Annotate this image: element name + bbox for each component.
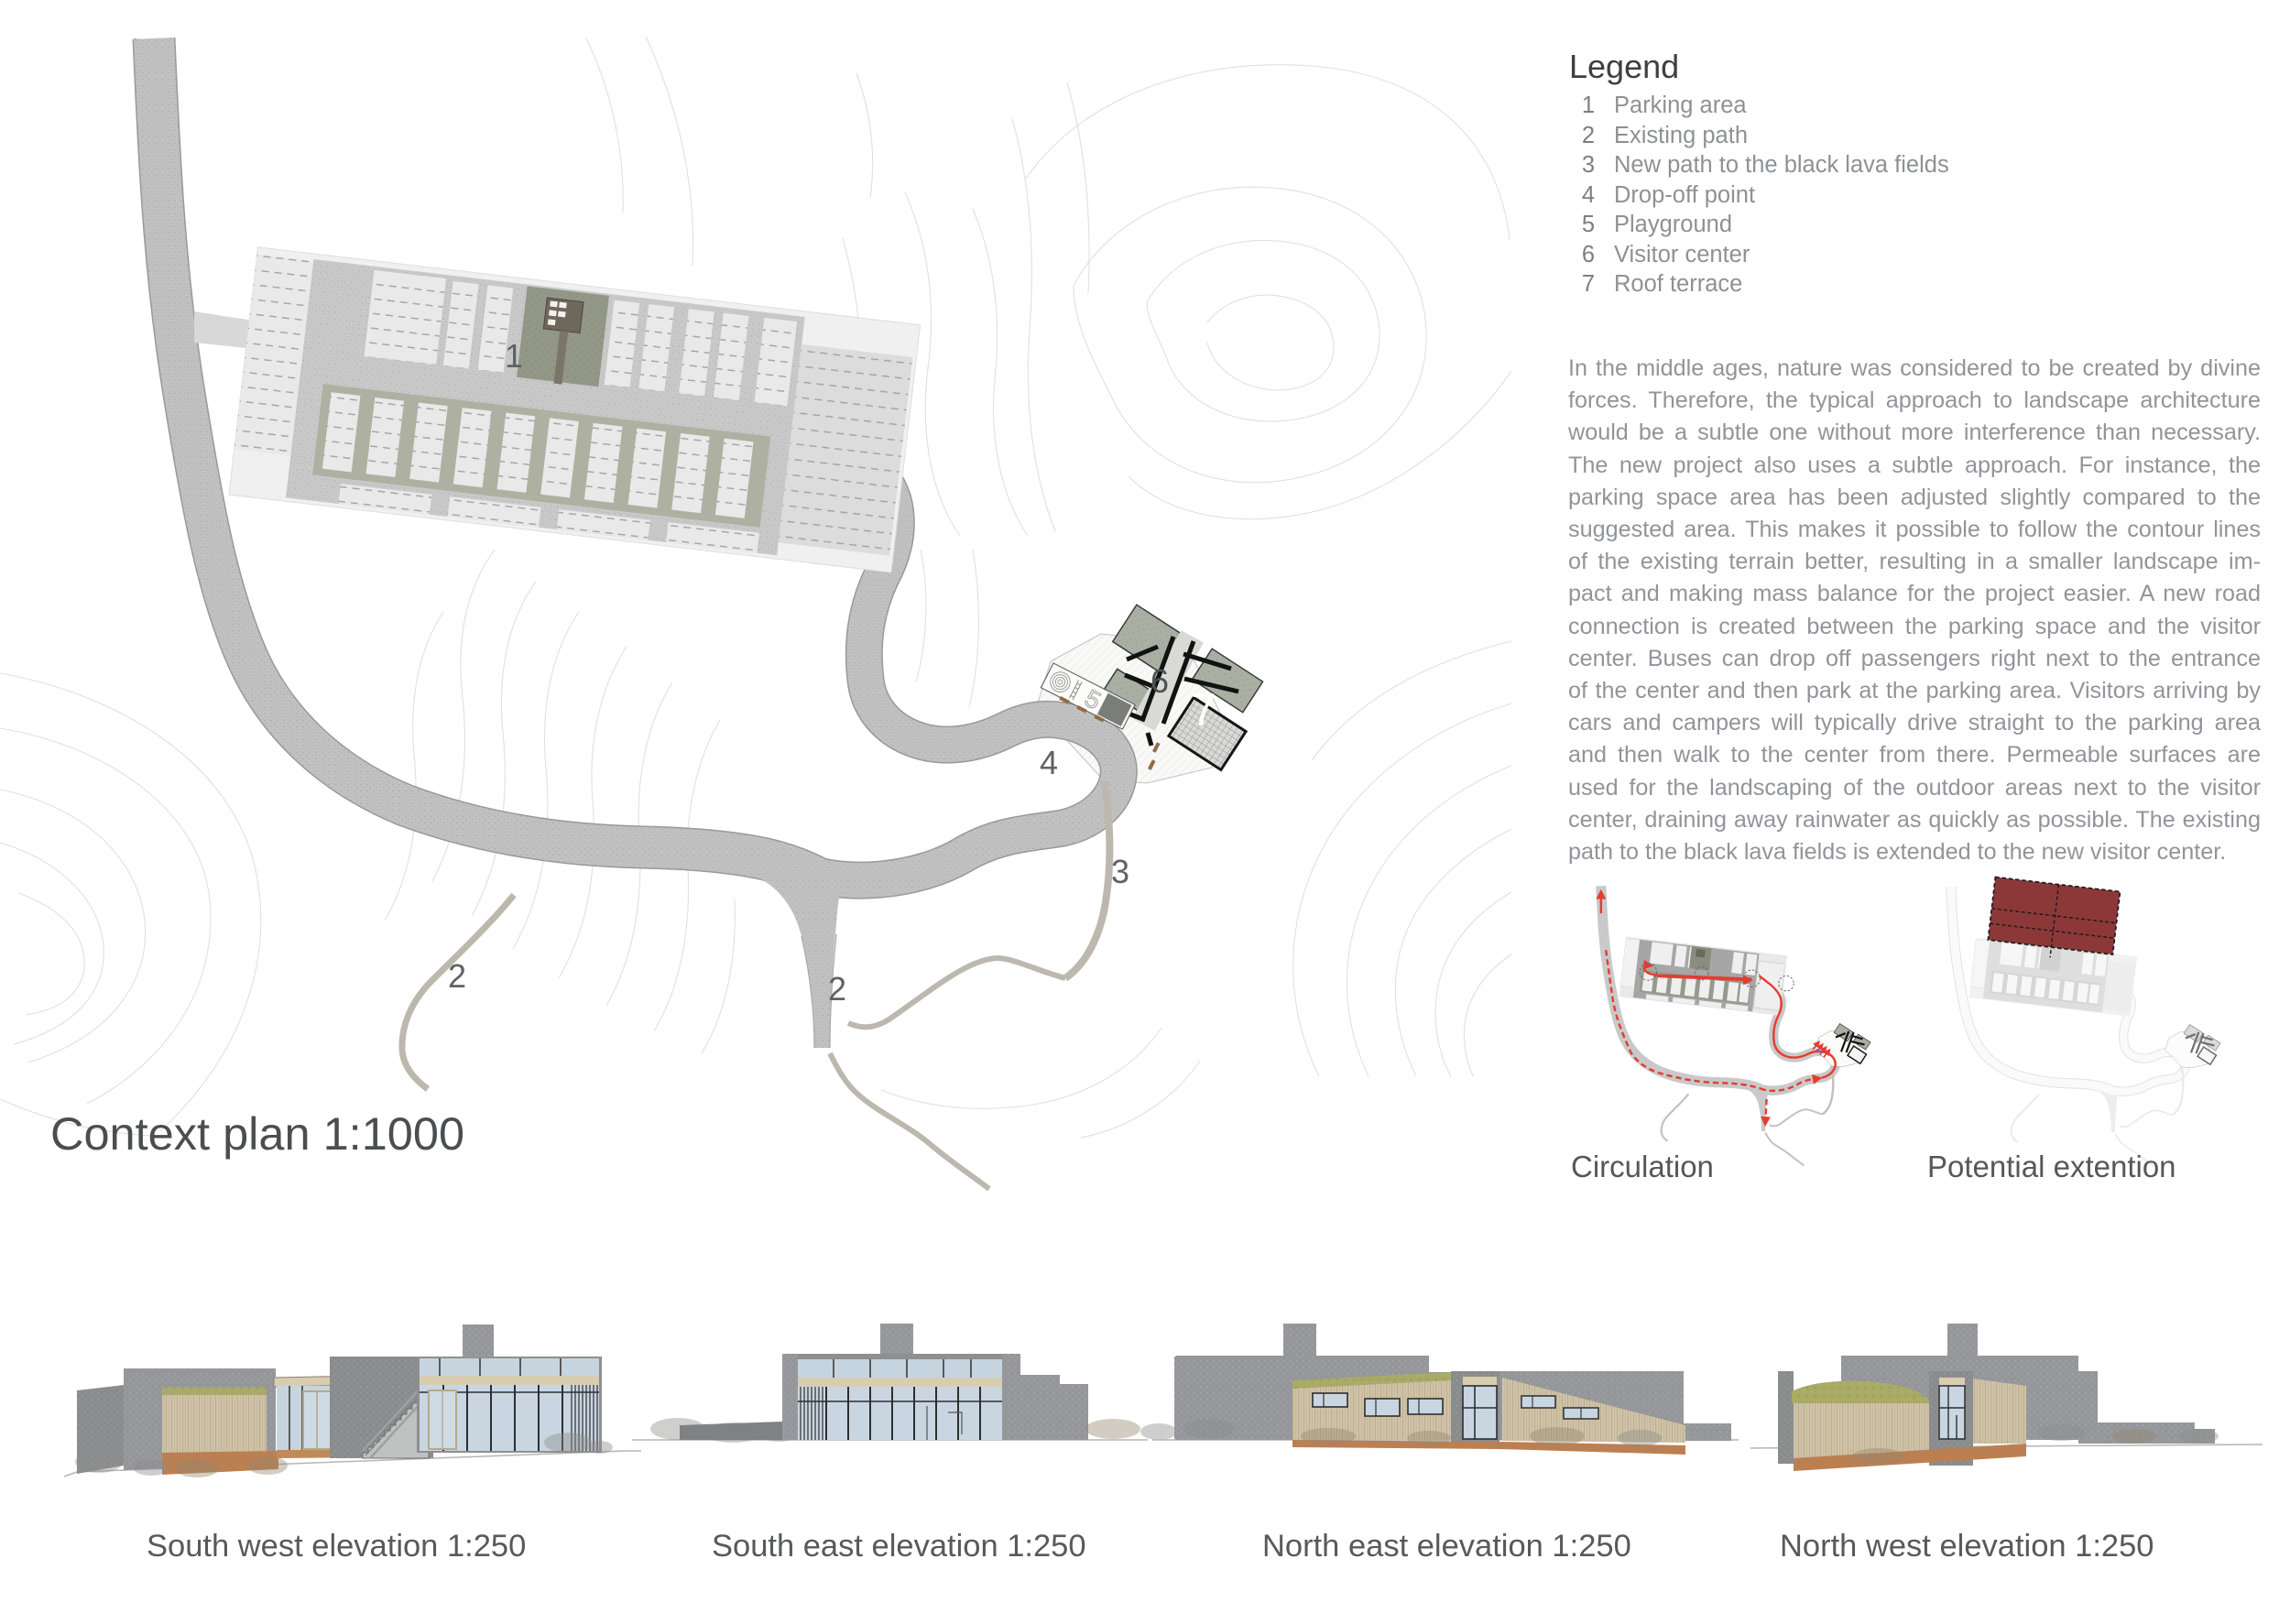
svg-text:2: 2 — [448, 957, 466, 995]
svg-text:1: 1 — [505, 337, 523, 375]
svg-text:3: 3 — [1111, 853, 1129, 890]
svg-text:2: 2 — [828, 970, 846, 1008]
svg-text:4: 4 — [1040, 744, 1058, 781]
svg-text:7: 7 — [1191, 684, 1216, 736]
svg-text:6: 6 — [1150, 662, 1169, 700]
